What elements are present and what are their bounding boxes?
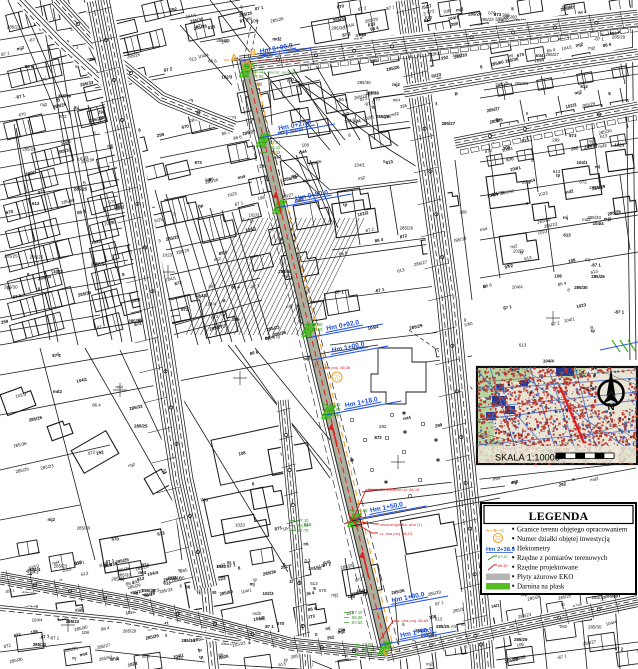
svg-text:285/26: 285/26 xyxy=(591,274,605,279)
svg-text:zmiana spadku: dno (1): zmiana spadku: dno (1) xyxy=(380,522,422,527)
svg-text:mj: mj xyxy=(303,541,309,547)
svg-text:285/29: 285/29 xyxy=(22,146,36,151)
svg-text:285/25: 285/25 xyxy=(74,186,88,191)
svg-text:104/4: 104/4 xyxy=(32,618,44,623)
svg-text:86 4: 86 4 xyxy=(92,402,101,407)
svg-text:285/26: 285/26 xyxy=(468,11,482,16)
svg-text:285/33: 285/33 xyxy=(33,642,47,647)
svg-text:md2: md2 xyxy=(582,217,591,222)
svg-text:102/3: 102/3 xyxy=(221,75,233,80)
svg-text:-87 1: -87 1 xyxy=(49,635,60,640)
svg-text:872: 872 xyxy=(181,307,189,312)
svg-text:104/4: 104/4 xyxy=(543,359,555,364)
svg-text:104/4: 104/4 xyxy=(205,301,217,306)
svg-text:87.60: 87.60 xyxy=(352,620,363,625)
svg-text:299: 299 xyxy=(502,13,510,18)
svg-text:SKALA 1:10000: SKALA 1:10000 xyxy=(495,453,560,463)
svg-text:86,45: 86,45 xyxy=(498,564,508,568)
svg-text:285/25: 285/25 xyxy=(4,254,18,259)
svg-text:66.50: 66.50 xyxy=(312,327,323,332)
svg-text:mj: mj xyxy=(594,164,600,170)
svg-text:285/30: 285/30 xyxy=(588,625,602,630)
svg-text:B: B xyxy=(250,47,256,57)
svg-text:66.80: 66.80 xyxy=(330,412,341,417)
svg-text:108: 108 xyxy=(554,274,562,279)
svg-text:87.10: 87.10 xyxy=(362,652,373,657)
svg-text:285/29: 285/29 xyxy=(514,637,528,642)
svg-text:299: 299 xyxy=(552,138,560,143)
svg-text:-87 1: -87 1 xyxy=(591,262,602,267)
svg-text:87 2: 87 2 xyxy=(615,647,624,652)
svg-text:rz. dna proj. 86,36: rz. dna proj. 86,36 xyxy=(318,365,351,370)
svg-text:104/4: 104/4 xyxy=(593,221,605,226)
svg-text:mj: mj xyxy=(325,625,331,631)
svg-text:md2: md2 xyxy=(53,389,63,394)
svg-text:285/26: 285/26 xyxy=(30,255,44,260)
svg-text:613: 613 xyxy=(519,342,527,347)
svg-text:285/25: 285/25 xyxy=(436,624,450,629)
svg-text:mj2: mj2 xyxy=(331,593,339,598)
svg-text:rz. dna proj. 86,13: rz. dna proj. 86,13 xyxy=(380,531,413,536)
svg-text:87 2: 87 2 xyxy=(195,293,204,298)
svg-text:670: 670 xyxy=(112,537,120,542)
svg-text:285/36: 285/36 xyxy=(181,638,195,643)
svg-text:mt4: mt4 xyxy=(138,570,146,575)
svg-text:108: 108 xyxy=(459,209,467,214)
svg-text:1023: 1023 xyxy=(452,53,462,58)
svg-text:rz. dna ist. rurociągu: rz. dna ist. rurociągu xyxy=(262,70,298,75)
svg-text:-87 1: -87 1 xyxy=(594,37,605,42)
svg-text:mj: mj xyxy=(74,105,79,110)
svg-text:mj: mj xyxy=(563,215,568,220)
svg-text:670: 670 xyxy=(319,588,327,593)
svg-text:B: B xyxy=(531,158,534,163)
svg-text:67.32: 67.32 xyxy=(498,555,508,559)
svg-text:87 2: 87 2 xyxy=(52,353,61,358)
svg-text:86 6: 86 6 xyxy=(208,59,217,64)
svg-text:285/30: 285/30 xyxy=(128,319,142,324)
svg-text:mt4: mt4 xyxy=(393,98,401,103)
svg-text:87 1: 87 1 xyxy=(265,624,274,629)
svg-text:Darnina na płask: Darnina na płask xyxy=(517,583,565,591)
svg-text:670: 670 xyxy=(273,335,281,340)
svg-text:613: 613 xyxy=(189,56,197,61)
svg-text:670: 670 xyxy=(277,621,285,626)
svg-text:1023: 1023 xyxy=(216,564,226,569)
svg-text:108: 108 xyxy=(82,630,90,635)
svg-text:872: 872 xyxy=(374,435,382,440)
svg-text:102/3: 102/3 xyxy=(513,249,525,254)
svg-text:873: 873 xyxy=(494,12,502,17)
svg-text:Numer działki objętej inwestyc: Numer działki objętej inwestycją xyxy=(517,535,611,543)
svg-text:86 4: 86 4 xyxy=(231,284,240,289)
svg-text:873: 873 xyxy=(142,654,150,659)
svg-text:LEGENDA: LEGENDA xyxy=(529,509,589,523)
svg-text:1023: 1023 xyxy=(614,142,624,147)
svg-text:mj2: mj2 xyxy=(40,102,48,107)
svg-text:102/3: 102/3 xyxy=(248,213,260,218)
svg-text:285/36: 285/36 xyxy=(58,94,72,99)
svg-text:108: 108 xyxy=(302,142,310,147)
svg-text:md2: md2 xyxy=(272,37,282,42)
svg-text:C: C xyxy=(383,647,389,657)
svg-text:285/26: 285/26 xyxy=(400,226,414,231)
svg-text:1023: 1023 xyxy=(162,252,172,257)
svg-text:285/29: 285/29 xyxy=(91,262,105,267)
svg-text:299: 299 xyxy=(232,317,240,322)
svg-text:mj2: mj2 xyxy=(604,217,612,222)
svg-text:104/4: 104/4 xyxy=(512,285,524,290)
svg-text:873: 873 xyxy=(569,133,577,138)
svg-text:613: 613 xyxy=(580,84,588,89)
svg-text:285/27: 285/27 xyxy=(442,121,456,126)
svg-text:86 6: 86 6 xyxy=(25,64,34,69)
svg-text:285/29: 285/29 xyxy=(612,34,626,39)
svg-text:873: 873 xyxy=(195,160,203,165)
svg-text:87 1: 87 1 xyxy=(356,33,365,38)
svg-text:mj2: mj2 xyxy=(426,662,434,667)
svg-text:285/29: 285/29 xyxy=(123,629,137,634)
svg-text:-87 1: -87 1 xyxy=(614,310,625,315)
svg-text:67.00: 67.00 xyxy=(253,74,264,79)
svg-text:72: 72 xyxy=(495,536,501,542)
svg-text:613: 613 xyxy=(32,201,40,206)
svg-text:104/1: 104/1 xyxy=(214,323,226,328)
svg-text:Rzędne projektowane: Rzędne projektowane xyxy=(517,564,578,572)
svg-text:299: 299 xyxy=(338,627,346,632)
svg-text:tp: tp xyxy=(221,313,225,318)
svg-text:mj2: mj2 xyxy=(392,82,400,87)
svg-text:285/25: 285/25 xyxy=(134,423,148,428)
svg-text:285/60: 285/60 xyxy=(111,577,125,582)
svg-text:Granice terenu objętego opraco: Granice terenu objętego opracowaniem xyxy=(517,526,628,534)
svg-text:285/30: 285/30 xyxy=(357,80,371,85)
svg-text:mt4: mt4 xyxy=(536,53,544,58)
svg-text:Rzędne z pomiarów terenowych: Rzędne z pomiarów terenowych xyxy=(517,554,608,562)
svg-text:87.70: 87.70 xyxy=(298,528,309,533)
svg-text:66.98: 66.98 xyxy=(357,508,368,513)
svg-text:mj: mj xyxy=(72,655,77,660)
svg-text:mj2: mj2 xyxy=(48,517,56,522)
svg-text:292: 292 xyxy=(379,424,387,429)
svg-text:872: 872 xyxy=(59,114,67,119)
svg-text:A—B—C: A—B—C xyxy=(486,528,505,533)
svg-text:mj: mj xyxy=(512,479,517,484)
svg-text:613: 613 xyxy=(163,581,171,586)
svg-text:285/23: 285/23 xyxy=(7,24,21,29)
svg-text:285/30: 285/30 xyxy=(77,526,91,531)
svg-text:613: 613 xyxy=(435,616,443,621)
svg-text:-87 1: -87 1 xyxy=(29,37,40,42)
svg-text:tp: tp xyxy=(561,602,565,607)
svg-text:1023: 1023 xyxy=(53,269,63,274)
svg-text:104/1: 104/1 xyxy=(577,160,589,165)
svg-text:1023: 1023 xyxy=(235,523,245,528)
svg-text:108: 108 xyxy=(348,594,356,599)
svg-text:mj2: mj2 xyxy=(265,336,273,341)
svg-text:102/3: 102/3 xyxy=(263,591,275,596)
svg-text:A: A xyxy=(231,52,237,62)
svg-text:Płyty ażurowe EKO: Płyty ażurowe EKO xyxy=(517,573,573,581)
svg-text:285/23: 285/23 xyxy=(480,17,494,22)
svg-text:87 1: 87 1 xyxy=(335,289,344,294)
svg-text:72: 72 xyxy=(334,376,340,382)
svg-text:285/29: 285/29 xyxy=(376,114,390,119)
svg-text:N: N xyxy=(608,402,615,413)
svg-text:67.02: 67.02 xyxy=(270,150,281,155)
svg-text:mj2: mj2 xyxy=(588,46,596,51)
svg-text:mj: mj xyxy=(585,257,590,262)
svg-text:rz. dna rowu proj. 86,95: rz. dna rowu proj. 86,95 xyxy=(258,58,301,63)
svg-text:285/30: 285/30 xyxy=(574,285,588,290)
svg-text:Hektometry: Hektometry xyxy=(517,545,551,553)
svg-text:B: B xyxy=(315,632,318,637)
svg-text:285/33: 285/33 xyxy=(592,595,606,600)
svg-text:104/1: 104/1 xyxy=(354,163,366,168)
svg-text:mt4: mt4 xyxy=(112,657,120,662)
svg-text:87 2: 87 2 xyxy=(30,570,39,575)
svg-text:872: 872 xyxy=(579,180,587,185)
svg-text:tp: tp xyxy=(198,648,202,653)
svg-text:86 6: 86 6 xyxy=(339,97,348,102)
svg-text:285/25: 285/25 xyxy=(515,81,529,86)
svg-text:mt4: mt4 xyxy=(116,385,124,390)
svg-text:rz. dna proj. 86,63: rz. dna proj. 86,63 xyxy=(396,618,429,623)
svg-text:613: 613 xyxy=(563,233,571,238)
svg-text:292: 292 xyxy=(98,109,106,114)
